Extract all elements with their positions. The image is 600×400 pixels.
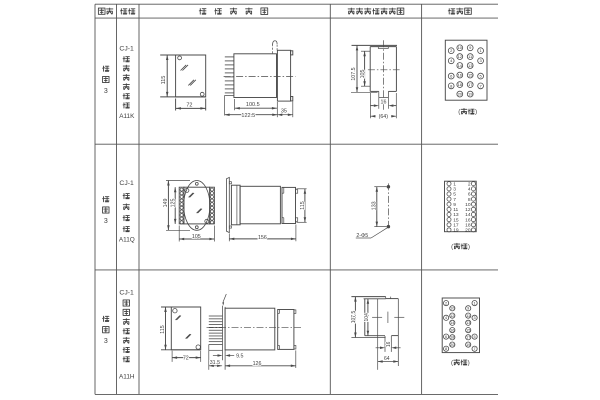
svg-text:9: 9 [453, 202, 456, 208]
svg-text:12: 12 [458, 54, 463, 59]
svg-text:8: 8 [468, 197, 471, 203]
svg-text:104: 104 [364, 313, 370, 322]
svg-text:156: 156 [258, 235, 267, 241]
svg-text:CJ-1: CJ-1 [119, 180, 134, 187]
svg-text:5: 5 [474, 335, 476, 339]
svg-text:6: 6 [468, 192, 471, 198]
svg-text:13: 13 [468, 63, 473, 68]
svg-text:12: 12 [450, 314, 454, 318]
svg-text:3: 3 [104, 218, 108, 225]
svg-text:126: 126 [253, 361, 262, 367]
svg-text:107.5: 107.5 [351, 311, 357, 324]
svg-text:16: 16 [450, 328, 454, 332]
svg-text:8: 8 [445, 347, 447, 351]
svg-text:9: 9 [467, 307, 469, 311]
svg-text:2: 2 [445, 301, 447, 305]
svg-text:16: 16 [465, 217, 471, 223]
svg-text:72: 72 [186, 103, 192, 109]
svg-text:12: 12 [465, 207, 471, 213]
svg-text:31.5: 31.5 [210, 360, 220, 366]
svg-text:11: 11 [453, 207, 458, 213]
svg-text:): ) [468, 360, 470, 367]
svg-text:CJ-1: CJ-1 [119, 45, 134, 52]
svg-text:20: 20 [450, 343, 454, 347]
svg-text:18: 18 [465, 222, 471, 228]
svg-text:17: 17 [466, 336, 470, 340]
svg-text:15: 15 [466, 328, 470, 332]
svg-text:14: 14 [450, 321, 454, 325]
svg-text:5: 5 [453, 192, 456, 198]
svg-text:14: 14 [465, 212, 471, 218]
svg-text:11: 11 [466, 314, 470, 318]
svg-text:): ) [475, 109, 477, 116]
svg-text:19: 19 [468, 92, 473, 97]
svg-text:133: 133 [372, 201, 378, 210]
svg-text:10: 10 [465, 202, 471, 208]
svg-text:10: 10 [450, 307, 454, 311]
svg-text:7: 7 [474, 347, 476, 351]
svg-text:15: 15 [453, 217, 459, 223]
svg-text:4: 4 [468, 187, 471, 193]
svg-text:): ) [468, 243, 470, 250]
svg-text:A11K: A11K [119, 113, 135, 120]
svg-text:19: 19 [453, 228, 459, 234]
svg-text:35: 35 [281, 109, 287, 115]
svg-text:3: 3 [453, 187, 456, 193]
svg-text:115: 115 [300, 201, 306, 209]
svg-text:14: 14 [458, 63, 463, 68]
svg-text:16: 16 [381, 100, 387, 106]
svg-text:4: 4 [445, 316, 447, 320]
svg-text:16: 16 [386, 341, 392, 347]
svg-text:3: 3 [474, 316, 476, 320]
svg-text:105: 105 [192, 234, 201, 240]
svg-text:149: 149 [163, 199, 169, 208]
svg-text:A11Q: A11Q [119, 236, 135, 243]
svg-text:10: 10 [458, 45, 463, 50]
svg-text:1: 1 [474, 301, 476, 305]
svg-text:17: 17 [468, 82, 473, 87]
svg-text:(64): (64) [379, 114, 389, 120]
svg-text:18: 18 [458, 82, 463, 87]
svg-text:3: 3 [104, 88, 108, 95]
svg-text:16: 16 [458, 73, 463, 78]
svg-text:6: 6 [445, 335, 447, 339]
svg-text:1: 1 [453, 181, 456, 187]
svg-text:64: 64 [384, 356, 390, 362]
svg-text:17: 17 [453, 222, 459, 228]
svg-text:20: 20 [465, 228, 471, 234]
svg-text:A11H: A11H [119, 373, 135, 380]
svg-text:115: 115 [160, 325, 166, 333]
svg-text:3: 3 [104, 338, 108, 345]
svg-text:72: 72 [183, 355, 189, 361]
svg-text:19: 19 [466, 343, 470, 347]
svg-text:18: 18 [450, 336, 454, 340]
svg-text:115: 115 [161, 76, 167, 85]
svg-text:13: 13 [466, 321, 470, 325]
svg-text:CJ-1: CJ-1 [119, 289, 134, 296]
svg-text:122.5: 122.5 [241, 113, 255, 119]
svg-text:20: 20 [458, 92, 463, 97]
svg-text:107.5: 107.5 [351, 67, 357, 80]
svg-text:125: 125 [170, 199, 176, 208]
svg-text:7: 7 [453, 197, 456, 203]
svg-text:105: 105 [360, 70, 366, 79]
svg-text:15: 15 [468, 73, 473, 78]
svg-text:100.5: 100.5 [246, 102, 260, 108]
svg-text:9.5: 9.5 [236, 354, 243, 360]
svg-text:2: 2 [468, 181, 471, 187]
svg-text:13: 13 [453, 212, 459, 218]
